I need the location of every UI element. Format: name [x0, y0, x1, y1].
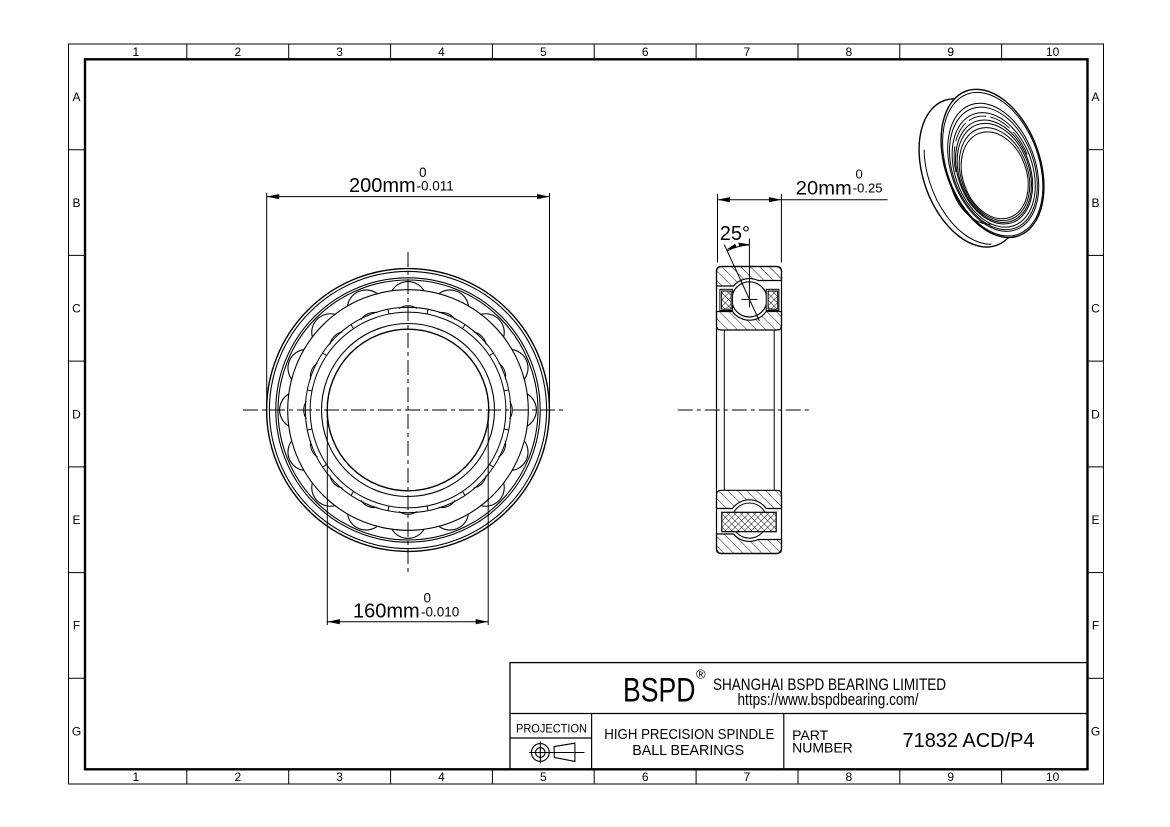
svg-text:2: 2 [234, 770, 241, 784]
svg-text:160mm: 160mm [353, 600, 420, 622]
svg-text:20mm: 20mm [796, 177, 852, 199]
svg-text:B: B [72, 196, 80, 210]
svg-text:A: A [1091, 90, 1099, 104]
svg-text:0: 0 [424, 591, 432, 606]
svg-text:G: G [1091, 724, 1100, 738]
svg-text:https://www.bspdbearing.com/: https://www.bspdbearing.com/ [738, 691, 919, 709]
svg-text:D: D [1091, 407, 1100, 421]
svg-text:C: C [1091, 302, 1100, 316]
svg-text:®: ® [696, 667, 706, 682]
svg-text:-0.25: -0.25 [853, 180, 883, 195]
svg-text:1: 1 [133, 770, 140, 784]
svg-text:F: F [73, 619, 80, 633]
svg-text:9: 9 [947, 45, 954, 59]
svg-text:PROJECTION: PROJECTION [516, 723, 587, 735]
svg-text:6: 6 [642, 770, 649, 784]
svg-text:4: 4 [438, 770, 445, 784]
svg-text:3: 3 [336, 770, 343, 784]
svg-text:1: 1 [133, 45, 140, 59]
svg-text:HIGH PRECISION SPINDLE: HIGH PRECISION SPINDLE [604, 727, 774, 743]
svg-text:F: F [1092, 619, 1099, 633]
svg-text:4: 4 [438, 45, 445, 59]
svg-text:C: C [72, 302, 81, 316]
svg-text:9: 9 [947, 770, 954, 784]
svg-text:8: 8 [846, 770, 853, 784]
svg-text:10: 10 [1046, 770, 1060, 784]
svg-text:BSPD: BSPD [623, 672, 696, 710]
svg-text:8: 8 [846, 45, 853, 59]
svg-text:A: A [72, 90, 80, 104]
svg-text:-0.010: -0.010 [421, 605, 459, 620]
svg-text:-0.011: -0.011 [417, 179, 454, 194]
svg-text:D: D [72, 407, 81, 421]
svg-text:NUMBER: NUMBER [792, 740, 853, 756]
svg-text:G: G [72, 724, 81, 738]
svg-text:7: 7 [744, 45, 751, 59]
svg-text:E: E [72, 513, 80, 527]
svg-text:E: E [1091, 513, 1099, 527]
svg-text:5: 5 [540, 45, 547, 59]
svg-text:2: 2 [234, 45, 241, 59]
svg-text:200mm: 200mm [349, 175, 416, 197]
svg-text:6: 6 [642, 45, 649, 59]
svg-text:10: 10 [1046, 45, 1060, 59]
svg-text:5: 5 [540, 770, 547, 784]
svg-text:BALL BEARINGS: BALL BEARINGS [632, 743, 744, 759]
svg-text:71832 ACD/P4: 71832 ACD/P4 [903, 729, 1035, 752]
svg-text:25°: 25° [720, 223, 750, 245]
svg-text:3: 3 [336, 45, 343, 59]
svg-text:B: B [1091, 196, 1099, 210]
svg-text:7: 7 [744, 770, 751, 784]
